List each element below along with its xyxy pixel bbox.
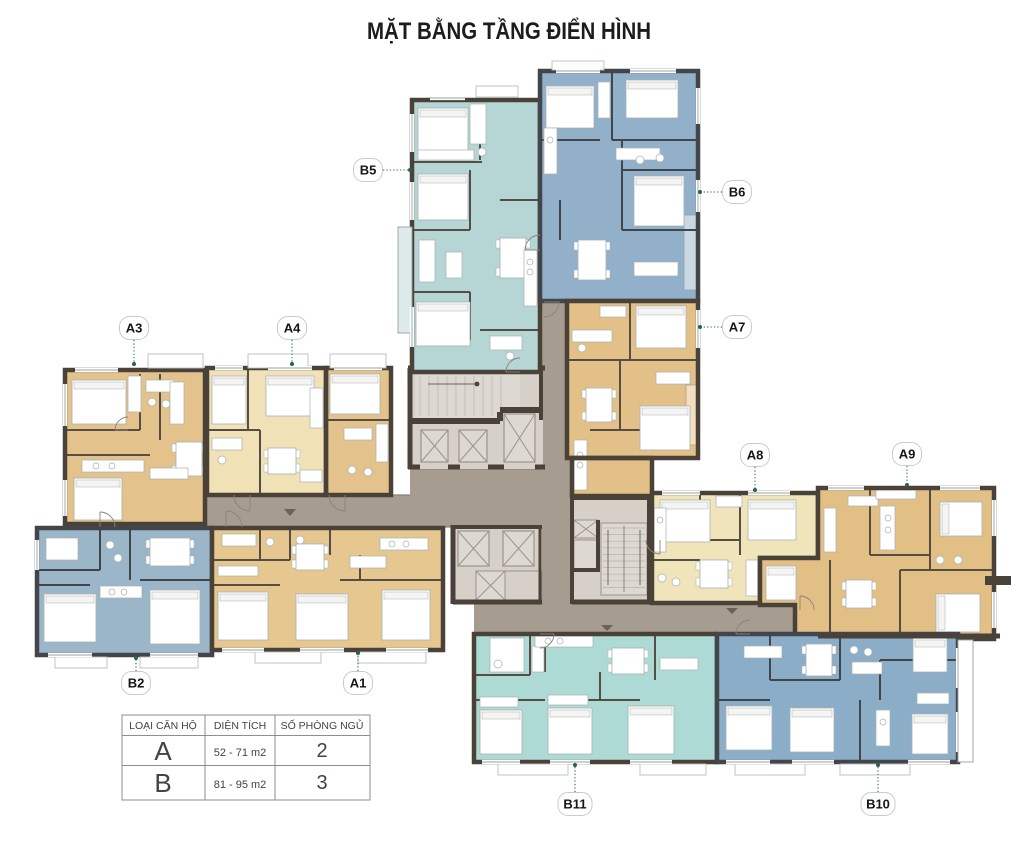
svg-text:B5: B5 bbox=[360, 163, 377, 178]
svg-text:52 - 71 m2: 52 - 71 m2 bbox=[214, 747, 267, 759]
svg-text:DIỆN TÍCH: DIỆN TÍCH bbox=[214, 719, 266, 732]
svg-text:A7: A7 bbox=[729, 320, 746, 335]
svg-text:A9: A9 bbox=[899, 447, 916, 462]
svg-text:LOẠI CĂN HỘ: LOẠI CĂN HỘ bbox=[129, 719, 197, 732]
svg-text:A4: A4 bbox=[284, 321, 301, 336]
svg-text:2: 2 bbox=[316, 740, 327, 762]
svg-text:A1: A1 bbox=[350, 676, 367, 691]
svg-text:B6: B6 bbox=[729, 185, 746, 200]
svg-text:B2: B2 bbox=[128, 676, 145, 691]
svg-text:A3: A3 bbox=[126, 321, 143, 336]
svg-text:B11: B11 bbox=[563, 797, 586, 812]
svg-text:B10: B10 bbox=[866, 797, 890, 812]
svg-text:MẶT BẰNG TẦNG ĐIỂN HÌNH: MẶT BẰNG TẦNG ĐIỂN HÌNH bbox=[367, 17, 651, 45]
svg-text:SỐ PHÒNG NGỦ: SỐ PHÒNG NGỦ bbox=[281, 718, 364, 732]
svg-text:81 - 95 m2: 81 - 95 m2 bbox=[214, 779, 267, 791]
svg-text:B: B bbox=[154, 768, 171, 798]
svg-text:A: A bbox=[154, 736, 172, 766]
svg-text:3: 3 bbox=[316, 772, 327, 794]
svg-text:A8: A8 bbox=[747, 448, 764, 463]
